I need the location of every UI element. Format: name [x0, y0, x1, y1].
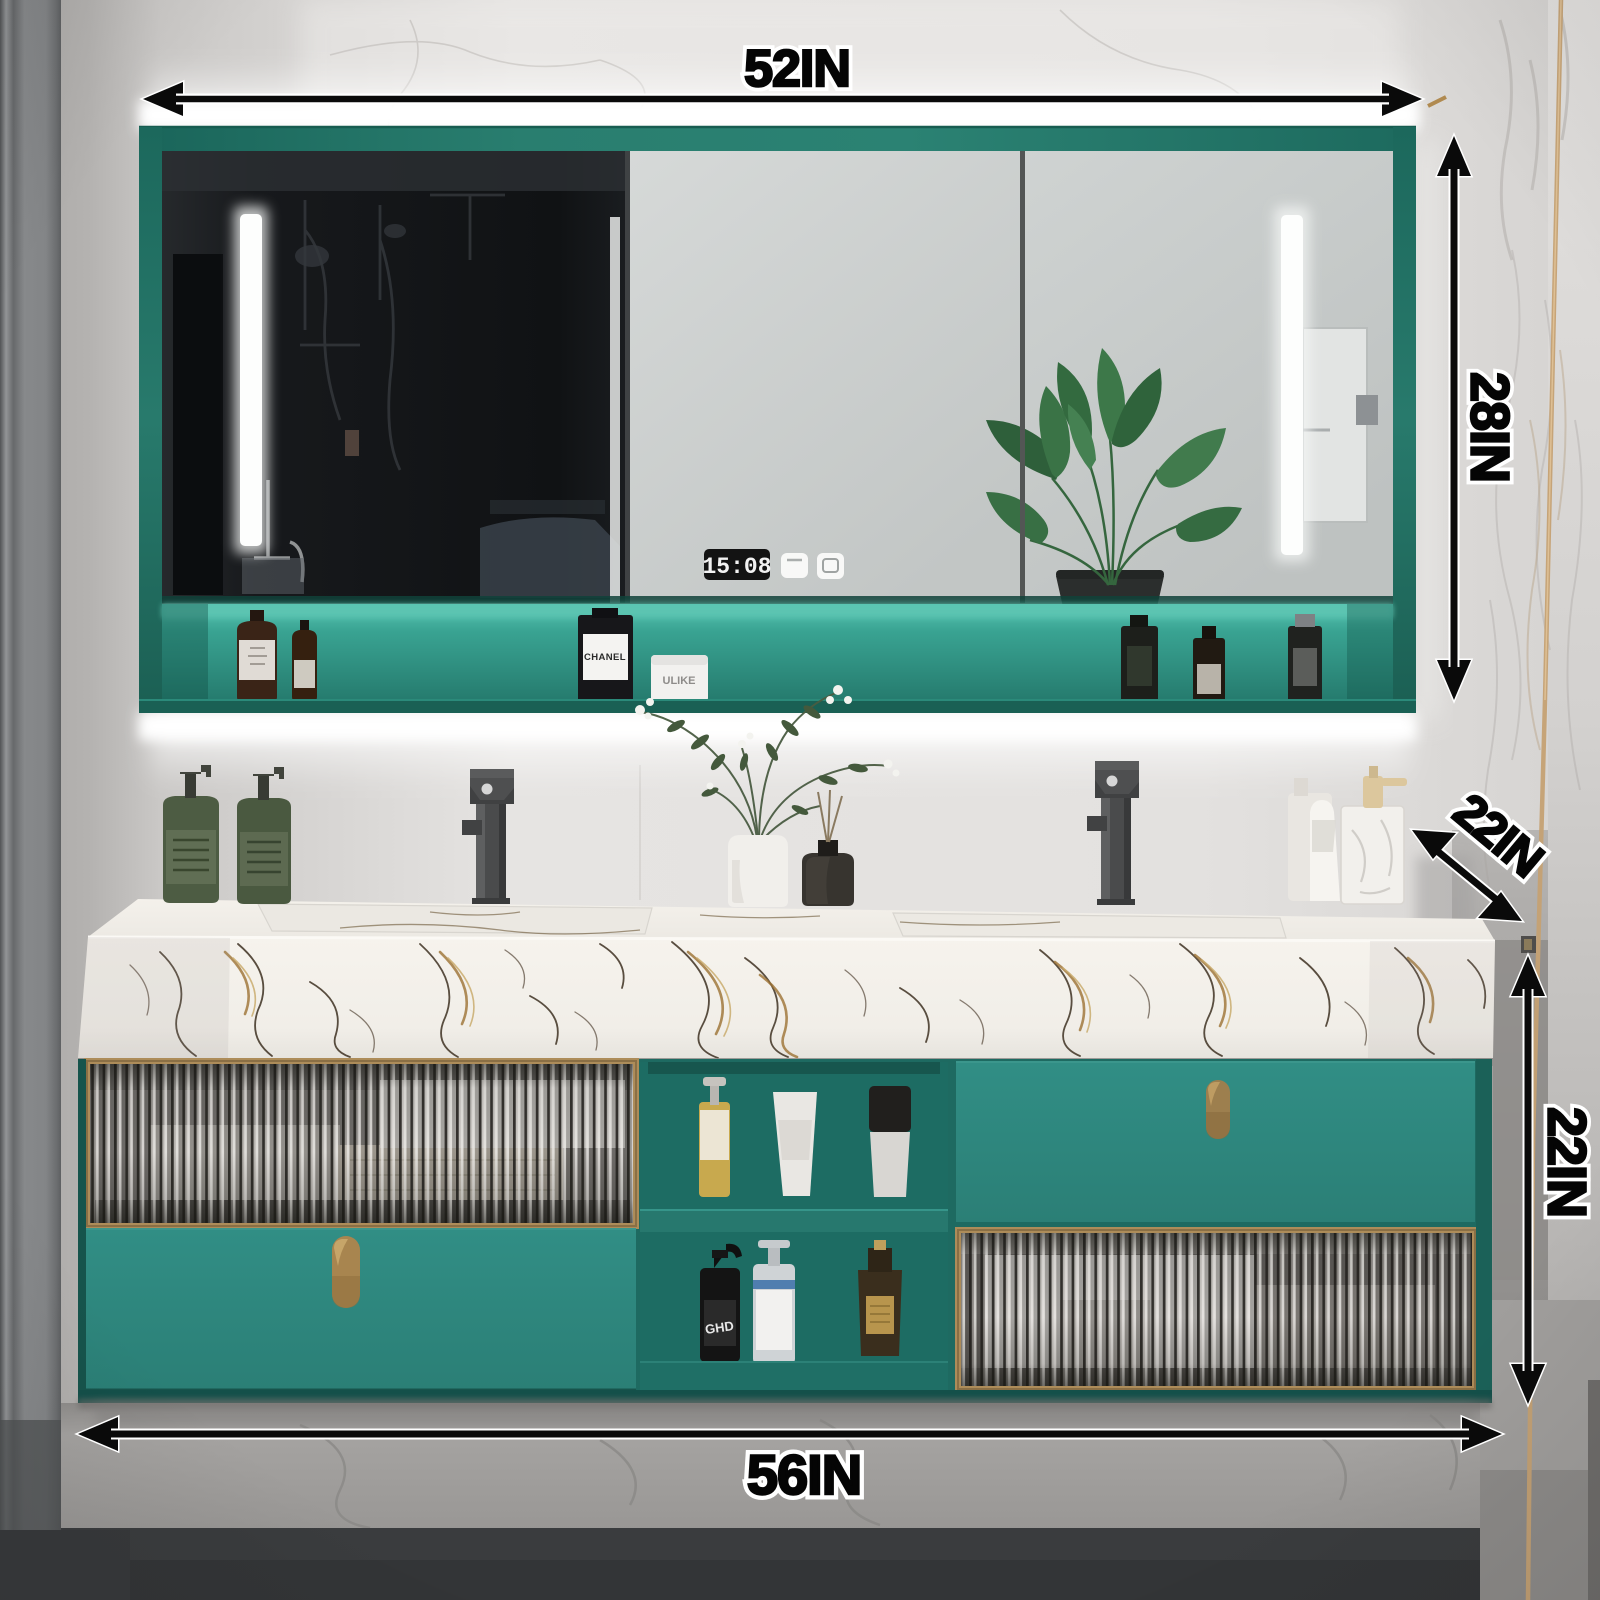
- svg-text:22IN: 22IN: [1537, 1107, 1597, 1217]
- svg-text:52IN: 52IN: [744, 40, 850, 98]
- svg-text:28IN: 28IN: [1460, 372, 1520, 482]
- svg-text:56IN: 56IN: [747, 1443, 861, 1506]
